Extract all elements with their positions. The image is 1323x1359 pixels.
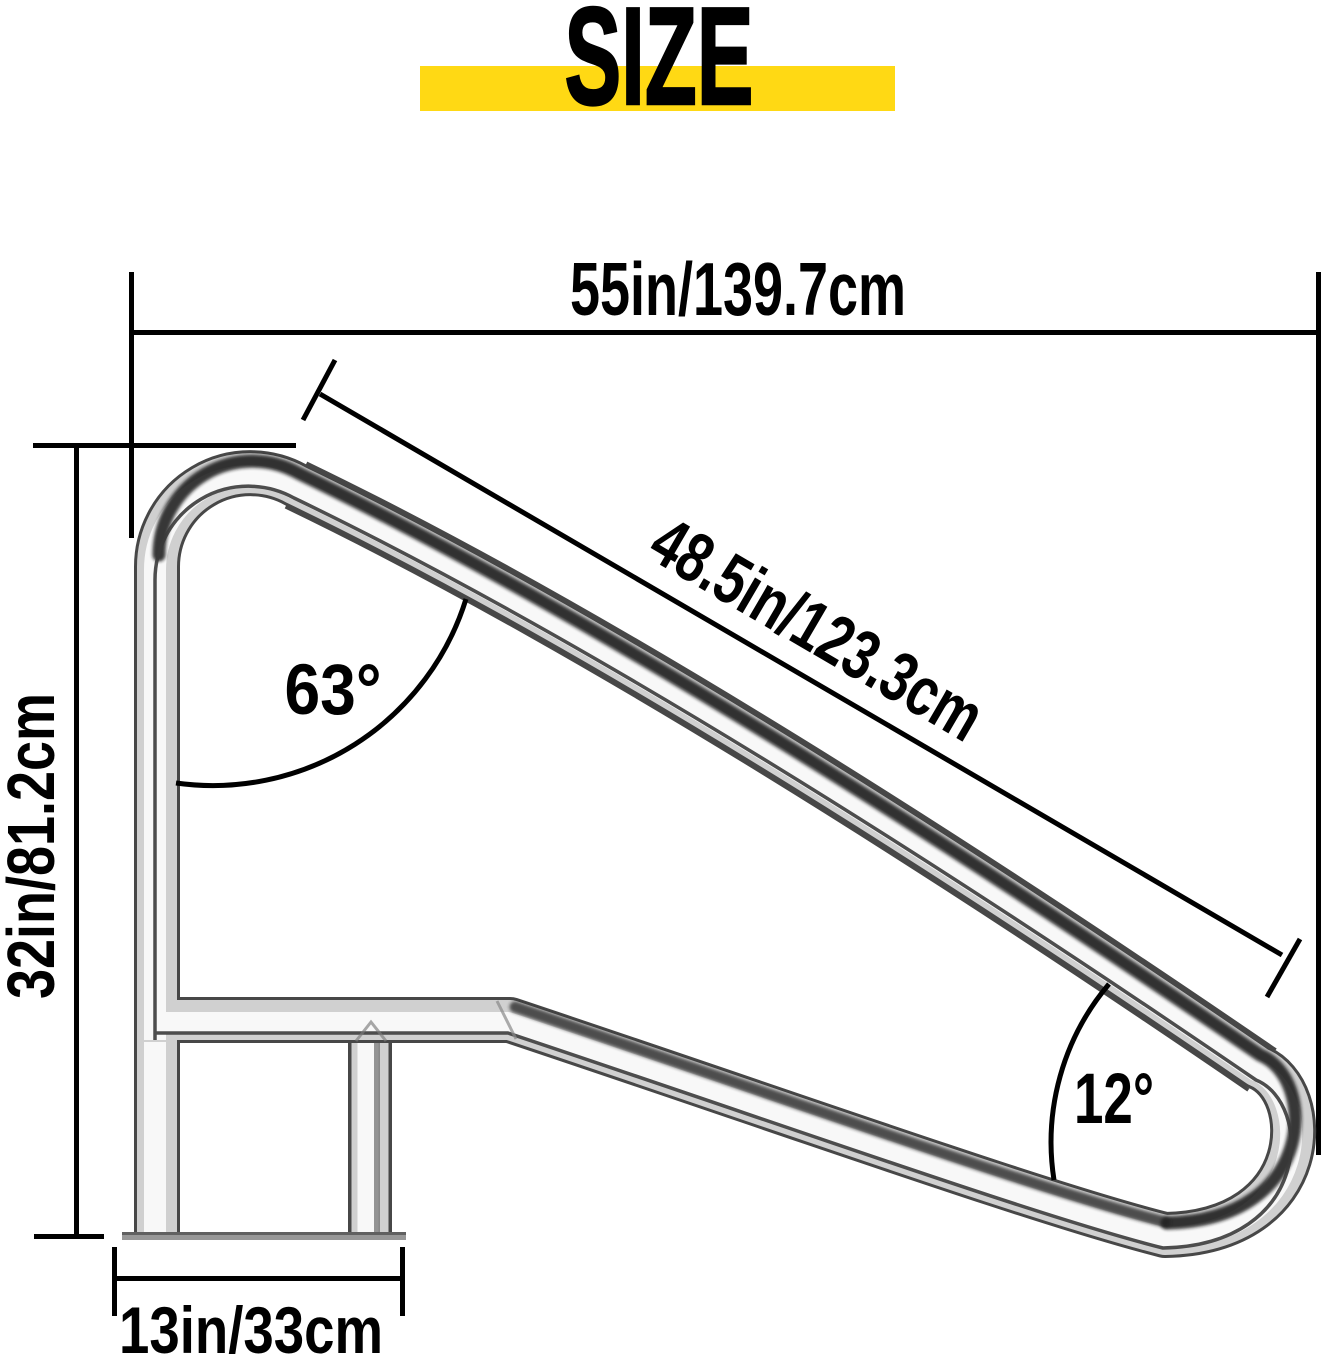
svg-text:SIZE: SIZE — [565, 0, 754, 134]
svg-text:55in/139.7cm: 55in/139.7cm — [570, 247, 906, 331]
svg-text:13in/33cm: 13in/33cm — [119, 1293, 383, 1359]
svg-text:63°: 63° — [285, 651, 382, 730]
svg-text:32in/81.2cm: 32in/81.2cm — [0, 693, 69, 999]
svg-text:12°: 12° — [1074, 1060, 1154, 1139]
